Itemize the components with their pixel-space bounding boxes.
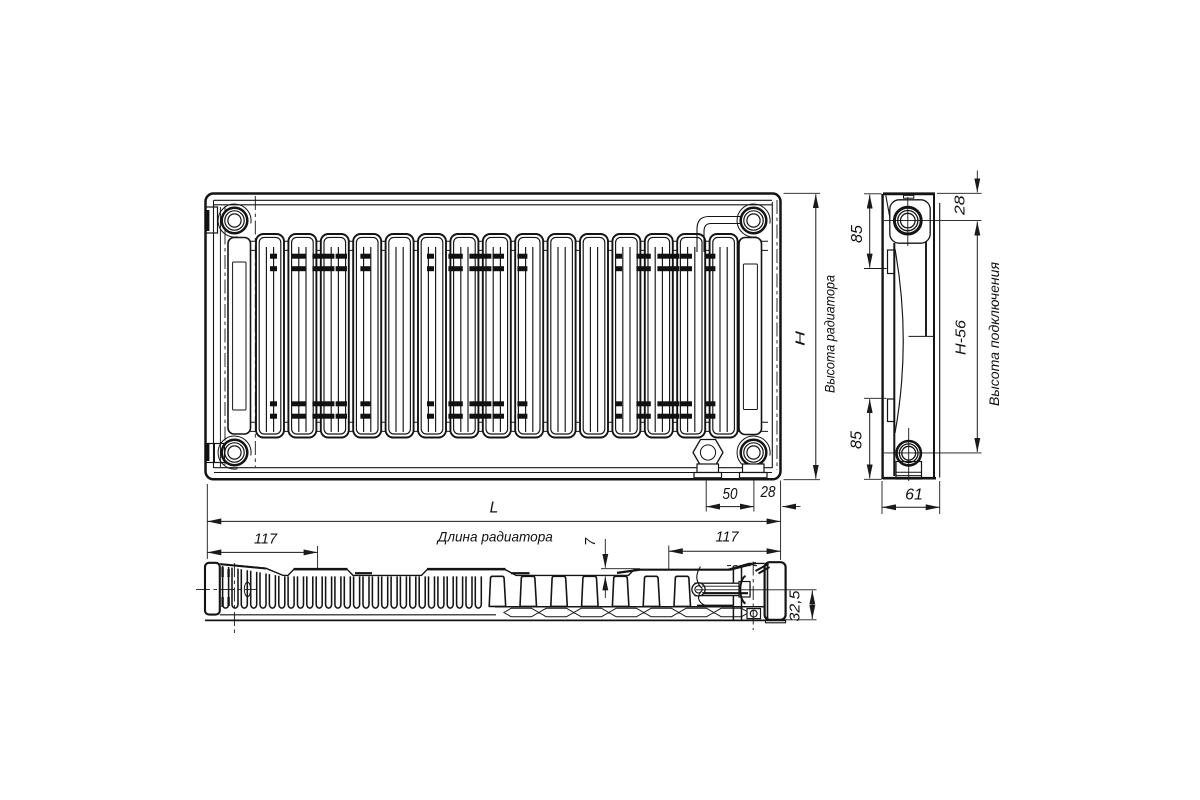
svg-text:Высота радиатора: Высота радиатора <box>822 275 838 393</box>
svg-text:Длина радиатора: Длина радиатора <box>436 529 553 545</box>
svg-text:7: 7 <box>583 537 599 546</box>
svg-text:50: 50 <box>723 486 738 503</box>
svg-text:32,5: 32,5 <box>787 590 804 622</box>
svg-text:117: 117 <box>254 532 278 548</box>
svg-text:H: H <box>793 330 808 346</box>
svg-text:28: 28 <box>760 484 776 501</box>
svg-text:85: 85 <box>849 431 866 449</box>
svg-text:L: L <box>490 499 499 516</box>
svg-text:85: 85 <box>849 225 866 243</box>
svg-text:117: 117 <box>715 530 739 546</box>
svg-text:28: 28 <box>953 196 969 217</box>
svg-text:H-56: H-56 <box>954 319 970 355</box>
svg-text:Высота подключения: Высота подключения <box>986 261 1002 406</box>
svg-text:61: 61 <box>905 487 923 504</box>
